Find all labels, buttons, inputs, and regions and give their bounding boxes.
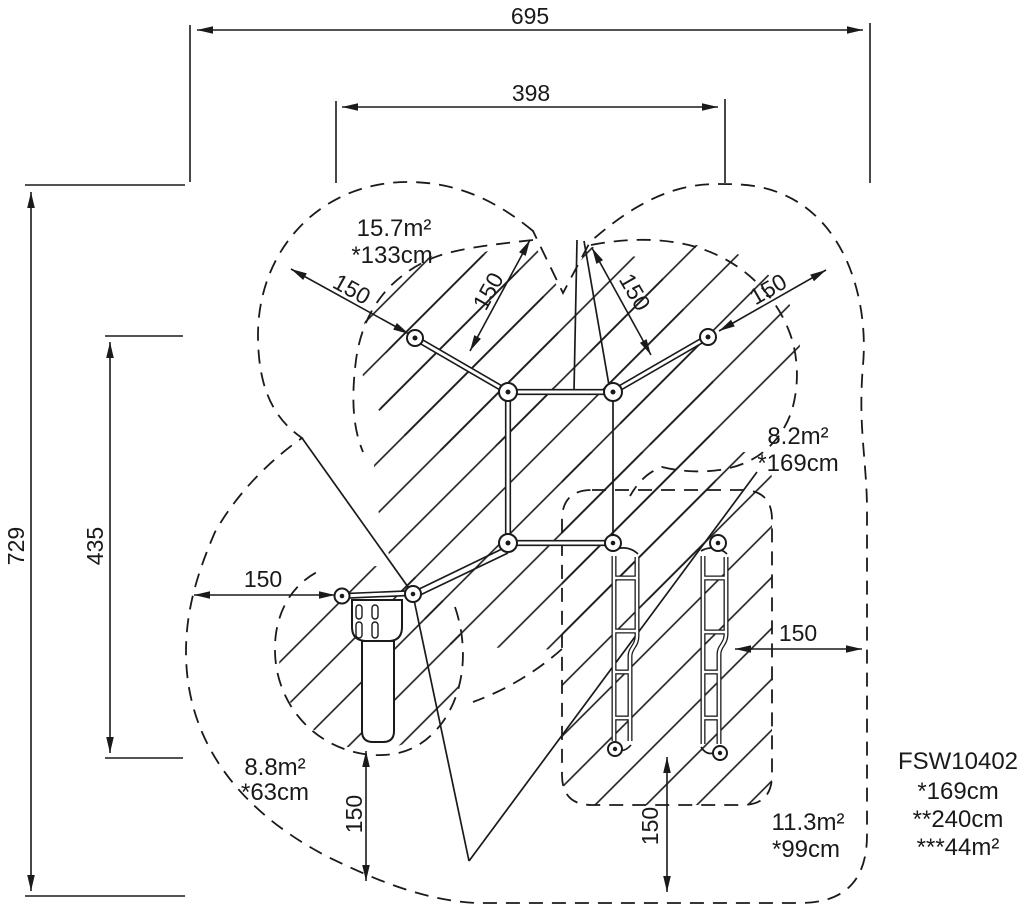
label-clearance-swing: 150 (244, 566, 282, 592)
zone3-height: *63cm (241, 779, 309, 806)
label-overall-width: 695 (511, 3, 549, 29)
zone3-area: 8.8m² (244, 754, 305, 781)
product-info: FSW10402 *169cm **240cm ***44m² (898, 748, 1018, 861)
zone1-area: 15.7m² (357, 215, 432, 242)
label-clearance-ladder-bottom: 150 (637, 807, 663, 845)
technical-drawing: 695 398 729 435 150 150 150 150 150 150 … (0, 0, 1024, 910)
label-inner-height: 435 (82, 527, 108, 565)
label-clearance-arm-left: 150 (329, 268, 375, 309)
drawing-page: 695 398 729 435 150 150 150 150 150 150 … (0, 0, 1024, 910)
product-code: FSW10402 (898, 748, 1018, 775)
label-inner-width: 398 (512, 80, 550, 106)
product-spec2: **240cm (913, 806, 1004, 833)
zone4-height: *99cm (772, 836, 840, 863)
label-clearance-swing-bottom: 150 (341, 795, 367, 833)
impact-area-hatch (279, 242, 800, 805)
zone1-height: *133cm (351, 242, 432, 269)
zone4-area: 11.3m² (772, 809, 845, 836)
zone2-area: 8.2m² (767, 423, 828, 450)
product-spec3: ***44m² (917, 834, 1000, 861)
zone2-height: *169cm (757, 450, 838, 477)
product-spec1: *169cm (917, 778, 998, 805)
inner-zone-gap-arc (473, 649, 562, 702)
label-clearance-ladder-right: 150 (779, 620, 817, 646)
label-overall-height: 729 (3, 527, 29, 565)
